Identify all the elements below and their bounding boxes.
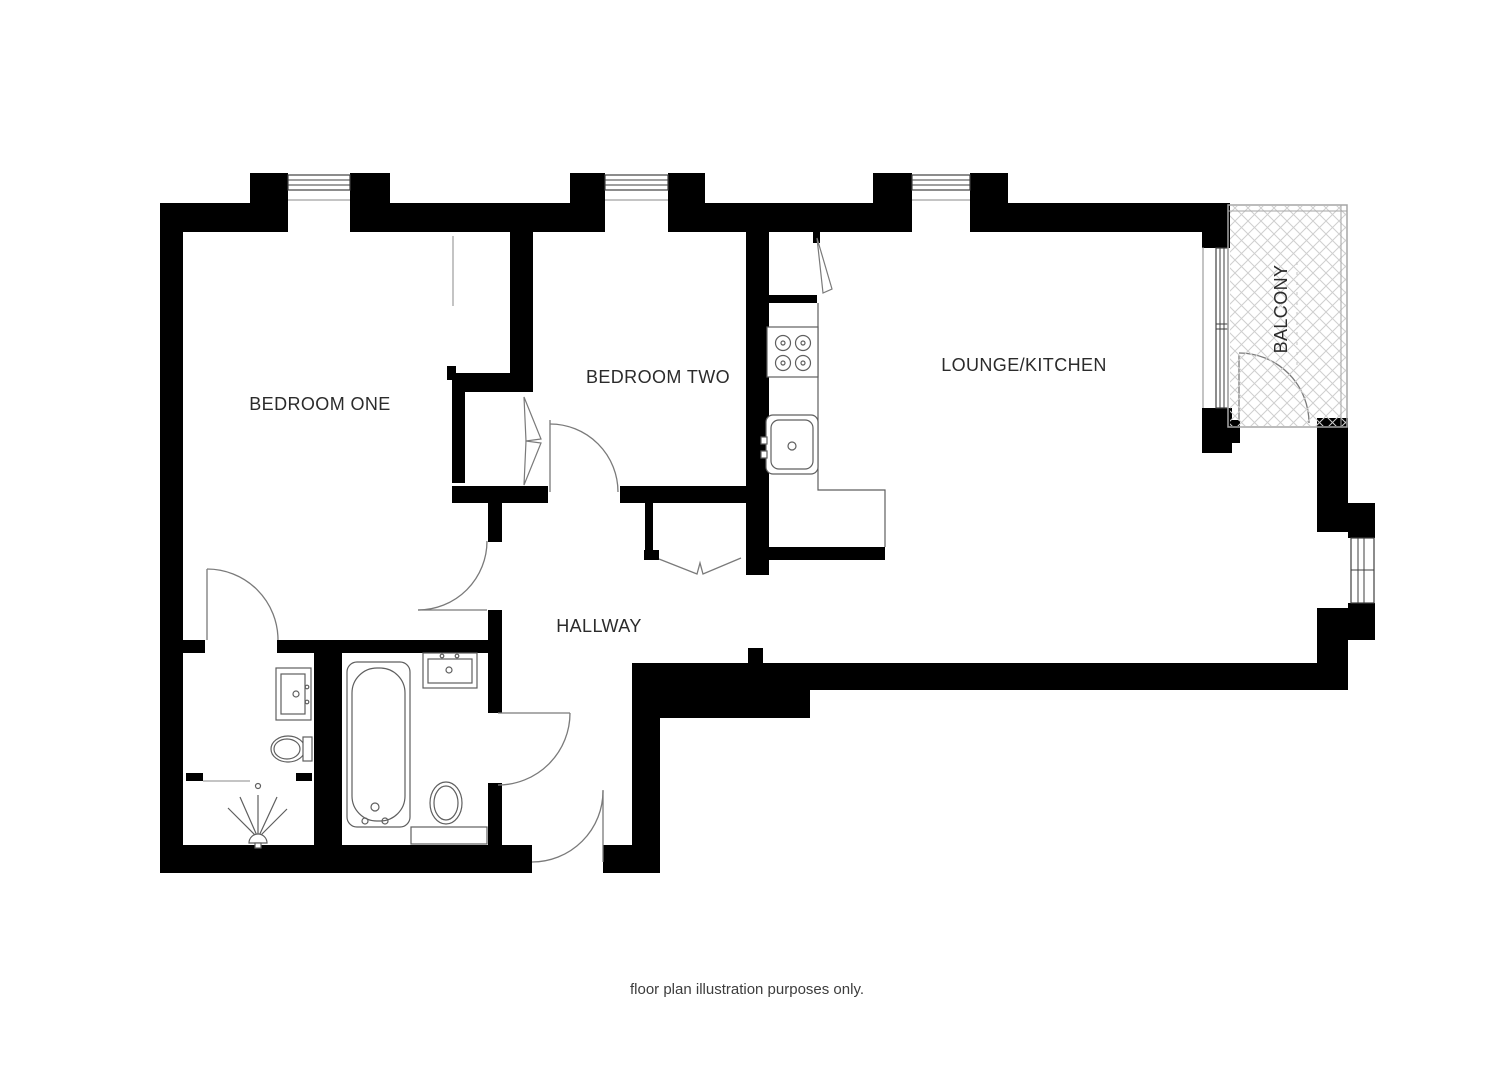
wall-segment (705, 203, 873, 232)
room-label-balcony: BALCONY (1271, 265, 1291, 354)
kitchen-sink-icon (761, 415, 818, 474)
window-pier (350, 173, 390, 232)
bathroom-fixtures (347, 653, 487, 844)
wall-segment (644, 550, 659, 560)
wall-segment (160, 203, 183, 873)
lounge-window (912, 175, 970, 200)
wall-segment (488, 653, 502, 713)
room-label-bedroom-one: BEDROOM ONE (249, 394, 390, 414)
balcony-window (1203, 247, 1228, 408)
wall-segment (183, 640, 205, 653)
hallway-cupboard-doors (659, 558, 741, 574)
wall-segment (763, 547, 885, 560)
window-pier (970, 173, 1008, 232)
wall-segment (762, 295, 817, 303)
wall-segment (1348, 503, 1375, 538)
window-pier (668, 173, 705, 232)
wall-segment (1317, 418, 1348, 532)
floor-plan-drawing: BEDROOM ONE BEDROOM TWO LOUNGE/KITCHEN H… (0, 0, 1495, 1080)
bedroom-two-wardrobe-doors (524, 397, 541, 485)
wall-segment (1348, 603, 1375, 640)
wall-segment (488, 503, 502, 542)
wall-segment (160, 845, 532, 873)
bathroom-toilet-icon (411, 782, 487, 844)
bathtub-icon (347, 662, 410, 827)
ensuite-door (207, 569, 278, 640)
wall-segment (314, 653, 342, 845)
window-pier (250, 173, 288, 232)
wall-segment (390, 203, 570, 232)
shower-icon (203, 781, 287, 848)
bedroom-two-door (550, 420, 618, 492)
side-window (1351, 538, 1374, 603)
entry-door (532, 790, 603, 862)
utility-cupboard-door (817, 238, 832, 293)
kitchen-fixtures (761, 303, 885, 547)
wall-segment (813, 232, 820, 243)
floor-plan-page: BEDROOM ONE BEDROOM TWO LOUNGE/KITCHEN H… (0, 0, 1495, 1080)
wall-segment (746, 232, 769, 575)
wall-segment (447, 366, 456, 380)
window-pier (873, 173, 912, 232)
room-label-lounge-kitchen: LOUNGE/KITCHEN (941, 355, 1107, 375)
bedroom-one-window (288, 175, 350, 200)
bedroom-two-window (605, 175, 668, 200)
wall-segment (452, 486, 548, 503)
ensuite-toilet-icon (271, 736, 312, 762)
wall-segment (488, 783, 502, 845)
wall-segment (452, 373, 465, 483)
bathroom-door (498, 713, 570, 785)
wall-segment (632, 690, 810, 718)
ensuite-sink-icon (276, 668, 311, 720)
wall-segment (510, 232, 533, 392)
wall-segment (277, 640, 502, 653)
wall-segment (620, 486, 747, 503)
walls (160, 173, 1375, 873)
wall-segment (1317, 608, 1348, 690)
wall-segment (296, 773, 312, 781)
wall-segment (748, 648, 763, 663)
bathroom-sink-icon (423, 653, 477, 688)
wall-segment (645, 503, 653, 555)
room-label-bedroom-two: BEDROOM TWO (586, 367, 730, 387)
wall-segment (1202, 232, 1230, 248)
wall-segment (632, 663, 1348, 690)
wall-segment (186, 773, 203, 781)
room-label-hallway: HALLWAY (556, 616, 642, 636)
window-pier (570, 173, 605, 232)
wall-segment (1008, 203, 1230, 232)
hob-icon (767, 327, 818, 377)
bedroom-one-door (418, 541, 487, 610)
worktop (818, 303, 885, 547)
caption: floor plan illustration purposes only. (630, 981, 864, 998)
ensuite-fixtures (203, 668, 312, 848)
